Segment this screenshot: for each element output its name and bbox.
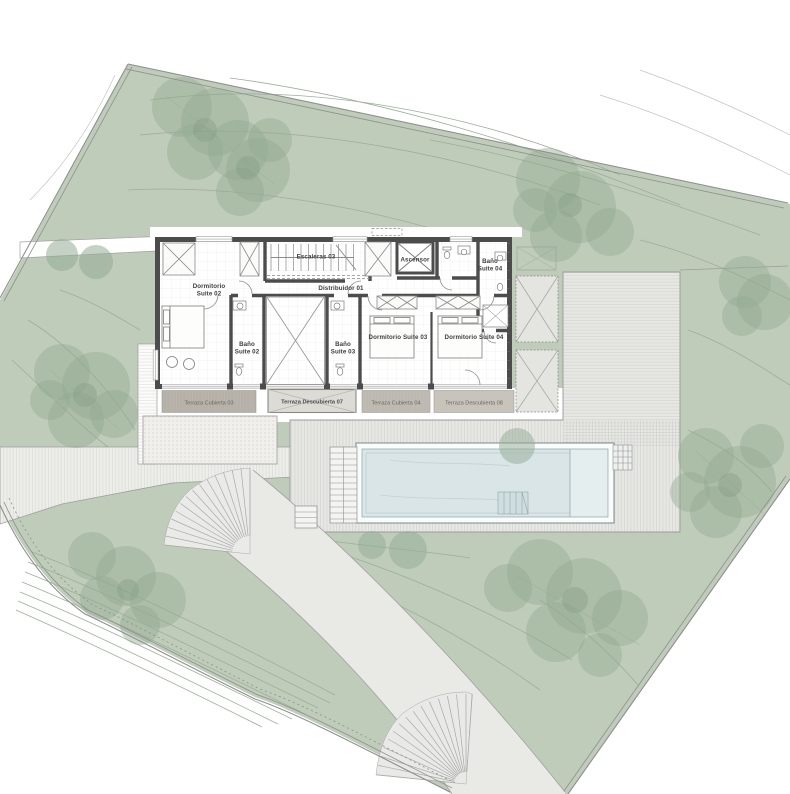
floor-tile-grid bbox=[160, 242, 510, 385]
label-dormitorio-suite-02: Dormitorio bbox=[193, 283, 226, 290]
label-bano-suite-02: Baño bbox=[239, 341, 255, 348]
label-dormitorio-suite-02-l2: Suite 02 bbox=[197, 291, 222, 298]
pool-steps bbox=[498, 492, 528, 514]
toilet bbox=[497, 283, 503, 290]
sink bbox=[461, 249, 467, 255]
label-bano-suite-02-l2: Suite 02 bbox=[235, 349, 260, 356]
chair bbox=[184, 359, 195, 370]
sink bbox=[334, 303, 340, 309]
label-terraza-descubierta-08: Terraza Descubierta 08 bbox=[445, 401, 503, 407]
label-dormitorio-suite-03: Dormitorio Suite 03 bbox=[369, 334, 428, 341]
label-bano-suite-03-l2: Suite 03 bbox=[331, 349, 356, 356]
label-escaleras: Escaleras 03 bbox=[297, 254, 336, 261]
label-bano-suite-03: Baño bbox=[335, 341, 351, 348]
sink bbox=[237, 303, 243, 309]
toilet bbox=[236, 368, 242, 376]
label-distribuidor: Distribuidor 01 bbox=[318, 285, 364, 292]
label-terraza-descubierta-07: Terraza Descubierta 07 bbox=[281, 400, 343, 406]
label-bano-suite-04-l2: Suite 04 bbox=[478, 266, 503, 273]
house-walls bbox=[158, 240, 513, 388]
label-dormitorio-suite-04: Dormitorio Suite 04 bbox=[445, 334, 504, 341]
sink bbox=[497, 255, 503, 261]
toilet bbox=[444, 251, 450, 258]
south-glazing bbox=[162, 384, 507, 390]
label-terraza-cubierta-04: Terraza Cubierta 04 bbox=[371, 401, 420, 407]
label-terraza-cubierta-03: Terraza Cubierta 03 bbox=[184, 401, 233, 407]
label-ascensor: Ascensor bbox=[400, 257, 429, 264]
skylight-dashed-outline bbox=[372, 229, 402, 236]
deck-access-steps bbox=[613, 445, 632, 470]
floor-plan-page: Escaleras 03 Distribuidor 01 Dormitorio … bbox=[0, 0, 790, 794]
gravel-courtyard bbox=[143, 416, 277, 464]
house-top-margin bbox=[150, 227, 522, 237]
site-plan-drawing: Escaleras 03 Distribuidor 01 Dormitorio … bbox=[0, 0, 790, 794]
toilet bbox=[337, 368, 343, 376]
pool bbox=[356, 443, 614, 523]
label-bano-suite-04: Baño bbox=[482, 258, 498, 265]
chair bbox=[167, 357, 178, 368]
